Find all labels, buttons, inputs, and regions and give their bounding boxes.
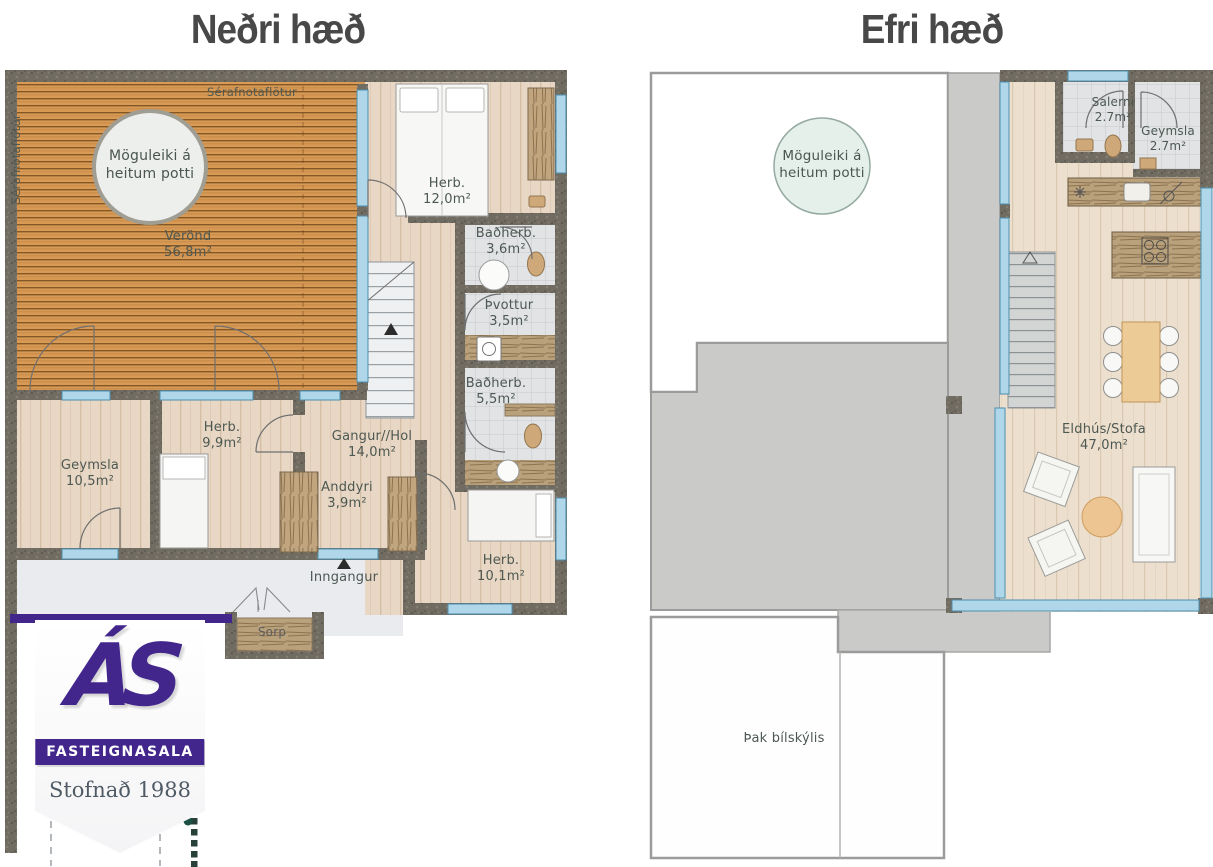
entrance-label: Inngangur (310, 570, 378, 586)
roof-terrace-step (838, 610, 1050, 652)
floorplan-page: Neðri hæð Efri hæð Sérafnotaflötur Séraf… (0, 0, 1213, 867)
storage-box-icon (1140, 158, 1156, 169)
room-label-eldhus-stofa: Eldhús/Stofa 47,0m² (1062, 422, 1146, 455)
toilet-icon (525, 424, 542, 448)
closet-icon (388, 477, 417, 551)
kitchen-sink-icon (1124, 183, 1150, 201)
room-label-herb99: Herb. 9,9m² (202, 420, 242, 453)
closet-icon (280, 472, 318, 552)
staircase-upper (1008, 252, 1055, 408)
coffee-table-icon (1082, 497, 1122, 537)
room-label-badherb36: Baðherb. 3,6m² (476, 226, 536, 259)
agency-logo: ÁS FASTEIGNASALA Stofnað 1988 (35, 620, 205, 853)
upper-floor-title: Efri hæð (861, 6, 1003, 53)
terrace-strip (948, 73, 1000, 611)
room-label-herb12: Herb. 12,0m² (423, 176, 471, 209)
lower-floor-title: Neðri hæð (191, 6, 365, 53)
single-bed-icon (160, 454, 208, 548)
room-label-gangur: Gangur//Hol 14,0m² (332, 429, 412, 462)
sink-icon (497, 460, 519, 482)
hot-tub-label-lower: Möguleiki á heitum potti (90, 148, 210, 183)
toilet-icon (1105, 135, 1121, 157)
waste-label: Sorp (258, 625, 286, 640)
hand-basin-icon (529, 196, 545, 207)
room-label-geymsla27: Geymsla 2.7m² (1141, 124, 1195, 154)
hot-tub-label-upper: Möguleiki á heitum potti (766, 148, 878, 182)
room-label-badherb55: Baðherb. 5,5m² (466, 376, 526, 409)
agency-established: Stofnað 1988 (35, 778, 205, 802)
exclusive-use-label-side: Sérafnotaflötur (9, 114, 23, 204)
room-label-salerni: Salerni 2.7m² (1092, 95, 1135, 125)
exclusive-use-label-top: Sérafnotaflötur (207, 85, 297, 99)
room-label-verond: Verönd 56,8m² (164, 229, 212, 262)
room-label-thvottur: Þvottur 3,5m² (485, 298, 534, 331)
dining-table-icon (1122, 322, 1160, 402)
sofa-icon (1133, 467, 1175, 562)
single-bed-icon (468, 490, 554, 541)
kitchen-island (1112, 232, 1204, 278)
staircase-lower (366, 262, 414, 418)
hand-basin-icon (1076, 139, 1093, 151)
carport-roof-label: Þak bílskýlis (743, 731, 824, 747)
washer-icon (477, 337, 501, 361)
dining-set (1104, 322, 1179, 402)
room-label-herb101: Herb. 10,1m² (477, 553, 525, 586)
room-label-geymsla105: Geymsla 10,5m² (61, 458, 119, 491)
agency-initials: ÁS (31, 626, 210, 726)
agency-banner: FASTEIGNASALA (35, 739, 204, 765)
room-label-anddyri: Anddyri 3,9m² (321, 480, 373, 513)
sink-icon (479, 260, 509, 290)
wardrobe-icon (528, 88, 554, 180)
upper-floor-plan (651, 70, 1213, 858)
